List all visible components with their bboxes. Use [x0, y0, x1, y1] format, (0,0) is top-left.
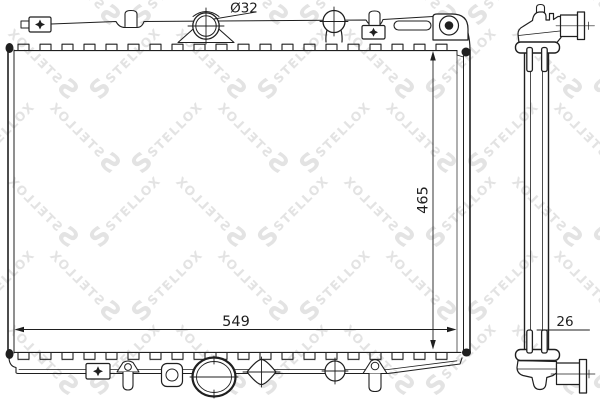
- top-mounting-pin-right: [369, 11, 380, 25]
- depth-label: 26: [556, 314, 573, 330]
- side-top-flange: [516, 42, 560, 53]
- bottom-mount-tab-right: [363, 360, 387, 392]
- oblong-slot: [394, 21, 431, 30]
- side-view: [516, 5, 596, 394]
- side-clip: [527, 48, 533, 72]
- bottom-wing-fitting: [243, 357, 280, 387]
- filler-neck: [178, 8, 234, 44]
- top-crimp-tabs: [14, 43, 457, 51]
- bottom-mount-eyelet: [322, 358, 348, 384]
- side-clip: [542, 330, 548, 353]
- dimension-annotations: Ø32 549 465 26: [15, 1, 590, 350]
- bracket-tab: [21, 21, 29, 28]
- top-mounting-pin-left: [125, 11, 137, 27]
- height-label: 465: [416, 186, 432, 214]
- top-mount-eyelet: [320, 7, 348, 42]
- side-clip: [527, 330, 533, 353]
- drain-plug: [190, 356, 238, 398]
- drawing-canvas: Ø32 549 465 26: [0, 0, 600, 400]
- side-core: [525, 52, 549, 350]
- front-view: [6, 7, 472, 398]
- inlet-fitting: [518, 5, 595, 44]
- side-clip: [542, 48, 548, 72]
- diameter-label: Ø32: [230, 1, 258, 17]
- side-bottom-flange: [516, 350, 560, 361]
- bottom-crimp-tabs: [14, 353, 457, 361]
- bottom-mount-tab-left: [117, 361, 139, 390]
- outlet-fitting: [517, 360, 595, 394]
- width-label: 549: [222, 314, 250, 330]
- radiator-technical-drawing: SSTELLOXSSTELLOXSSTELLOXSSTELLOXSSTELLOX…: [0, 0, 600, 400]
- bottom-bolt-boss: [162, 364, 183, 387]
